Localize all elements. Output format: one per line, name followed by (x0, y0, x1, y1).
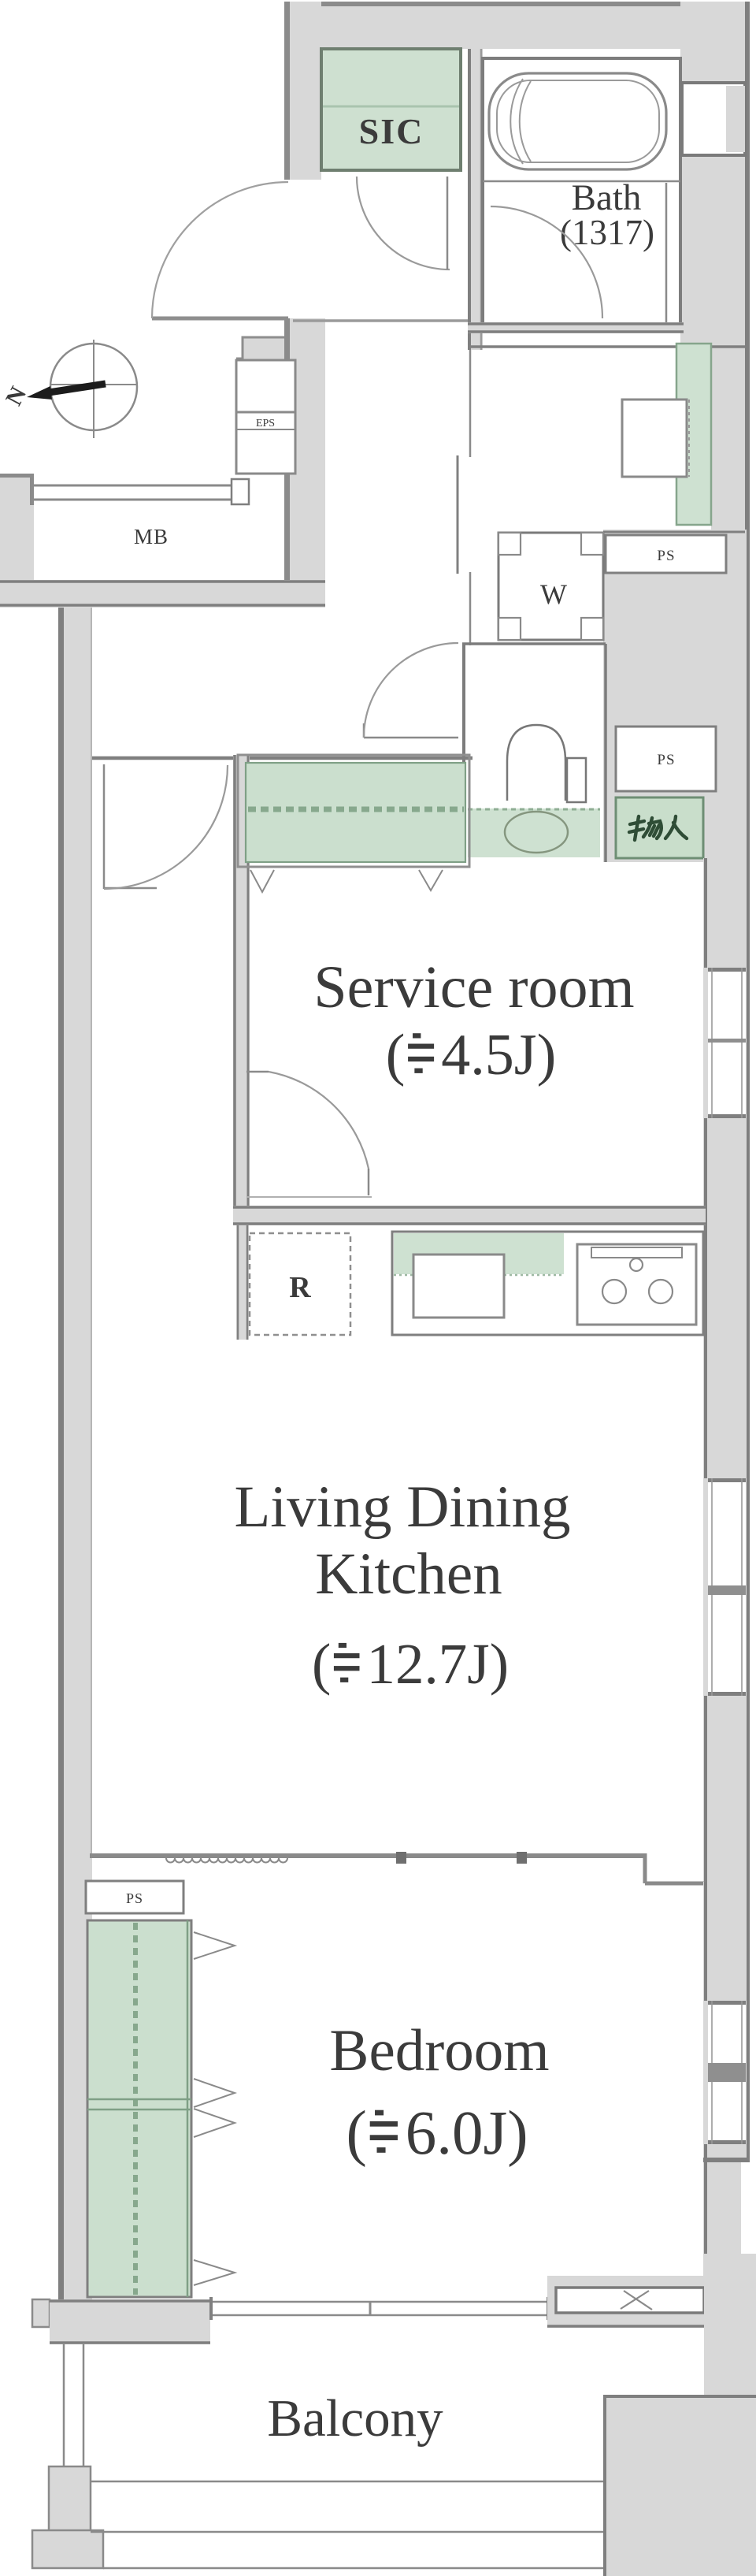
svg-text:PS: PS (657, 548, 675, 564)
svg-text:EPS: EPS (256, 418, 275, 429)
svg-text:PS: PS (126, 1890, 143, 1906)
svg-text:6.0J): 6.0J) (406, 2099, 528, 2168)
svg-text:4.5J): 4.5J) (441, 1023, 556, 1087)
svg-text:Living Dining: Living Dining (234, 1474, 570, 1540)
svg-text:(: ( (312, 1632, 331, 1696)
svg-text:Kitchen: Kitchen (315, 1541, 502, 1607)
svg-text:Bedroom: Bedroom (329, 2018, 549, 2083)
svg-text:(: ( (346, 2099, 366, 2168)
svg-text:SIC: SIC (359, 111, 424, 151)
svg-text:(: ( (386, 1023, 406, 1087)
svg-text:W: W (540, 578, 567, 610)
svg-text:Service room: Service room (313, 954, 634, 1020)
svg-text:(1317): (1317) (560, 213, 654, 252)
svg-text:R: R (289, 1271, 311, 1304)
svg-text:PS: PS (657, 752, 675, 768)
svg-text:Balcony: Balcony (267, 2389, 443, 2448)
svg-text:MB: MB (134, 525, 169, 548)
svg-text:12.7J): 12.7J) (367, 1632, 509, 1696)
